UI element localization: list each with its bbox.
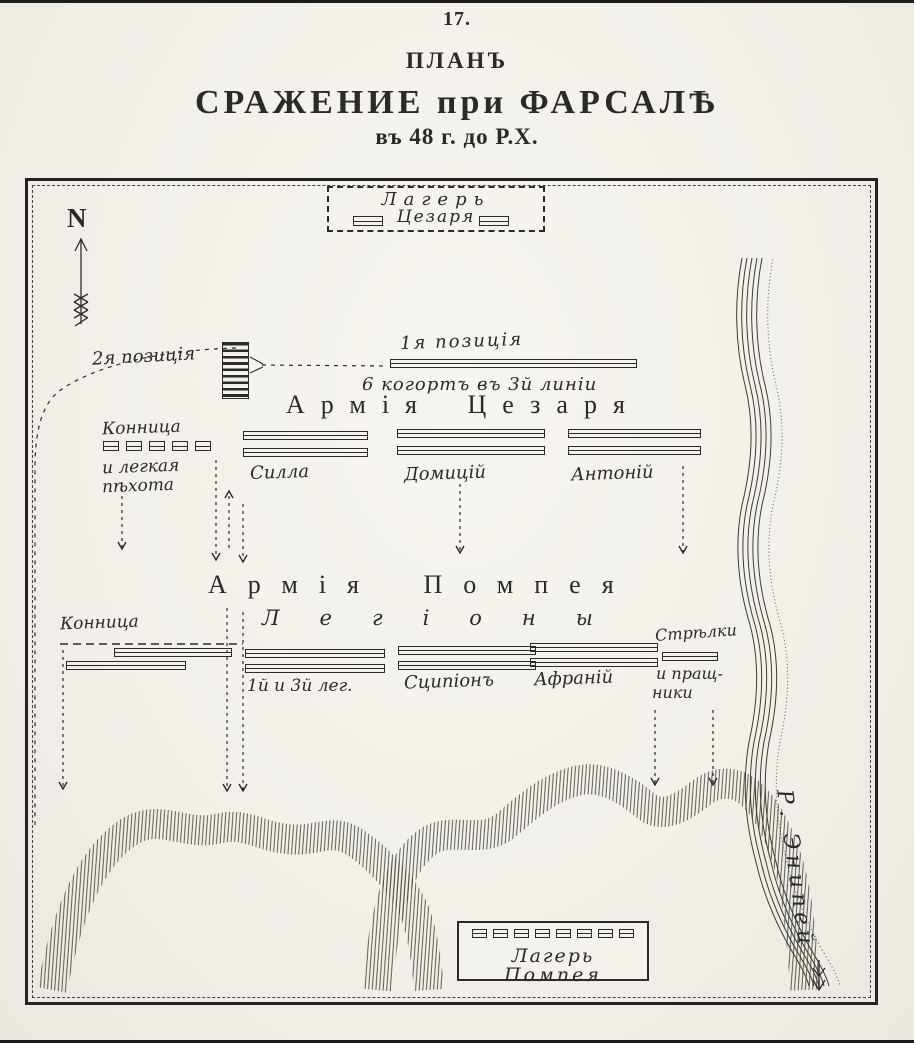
camp-unit-icon [479, 216, 516, 234]
cavalry-squadron-icon [149, 441, 165, 451]
unit-bar-antonius-2 [568, 446, 701, 455]
cavalry-squadron-icon [195, 441, 211, 451]
camp-unit-icon [535, 929, 550, 938]
north-arrow-icon [74, 239, 88, 326]
position-2-block [222, 342, 249, 399]
unit-bar-antonius-1 [568, 429, 701, 438]
pompey-cavalry-label: Конница [60, 612, 139, 635]
unit-bar-domitius-2 [397, 446, 545, 455]
pompey-legions-label: Легіоны [262, 606, 633, 630]
cavalry-squadron-icon [126, 441, 142, 451]
unit-label-scipio: Сципіонъ [404, 669, 495, 693]
archers-bar [662, 652, 718, 661]
unit-label-antonius: Антоній [571, 462, 654, 486]
unit-label-afranius: Афраній [534, 667, 614, 691]
unit-bar-scipio-1 [398, 646, 536, 655]
camp-unit-icon [493, 929, 508, 938]
pompey-camp-box: Лагерь Помпея [457, 921, 649, 981]
slingers-label-1: и пращ- [656, 664, 723, 683]
unit-bar-silla-2 [243, 448, 368, 457]
camp-unit-icon [619, 929, 634, 938]
caesar-cavalry-label: Конница [102, 417, 181, 440]
north-label: N [67, 203, 87, 234]
caesar-army-title: Армія Цезаря [286, 390, 641, 420]
position-connector [250, 357, 388, 373]
position-1-bar [390, 359, 637, 368]
unit-bar-domitius-1 [397, 429, 545, 438]
pompey-cavalry-bar-2 [66, 661, 186, 670]
camp-unit-icon [556, 929, 571, 938]
unit-label-legions13: 1й и 3й лег. [247, 676, 353, 696]
unit-label-silla: Силла [250, 461, 310, 484]
caesar-camp-box: Лагерь Цезаря [327, 186, 545, 232]
camp-unit-icon [598, 929, 613, 938]
camp-unit-icon [514, 929, 529, 938]
position-1-label: 1я позиція [400, 329, 524, 354]
unit-bar-silla-1 [243, 431, 368, 440]
unit-bar-afranius-2 [530, 658, 658, 667]
camp-unit-icon [472, 929, 487, 938]
caesar-light-infantry-label-2: пѣхота [102, 475, 175, 498]
scanned-battle-plan: 17. ПЛАНЪ СРАЖЕНИЕ при ФАРСАЛѢ въ 48 г. … [0, 0, 914, 1043]
slingers-label-2: ники [652, 683, 693, 702]
unit-bar-legions13-1 [245, 649, 385, 658]
camp-unit-icon [577, 929, 592, 938]
pompey-army-title: Армія Помпея [208, 570, 635, 600]
unit-bar-legions13-2 [245, 664, 385, 673]
cavalry-squadron-icon [172, 441, 188, 451]
unit-bar-afranius-1 [530, 643, 658, 652]
camp-unit-icon [353, 216, 390, 234]
pompey-camp-label-line2: Помпея [459, 964, 647, 986]
cavalry-squadron-icon [103, 441, 119, 451]
unit-label-domitius: Домицій [404, 462, 487, 486]
terrain-artwork [0, 0, 914, 1043]
pompey-cavalry-bar-1 [114, 648, 232, 657]
unit-bar-scipio-2 [398, 661, 536, 670]
